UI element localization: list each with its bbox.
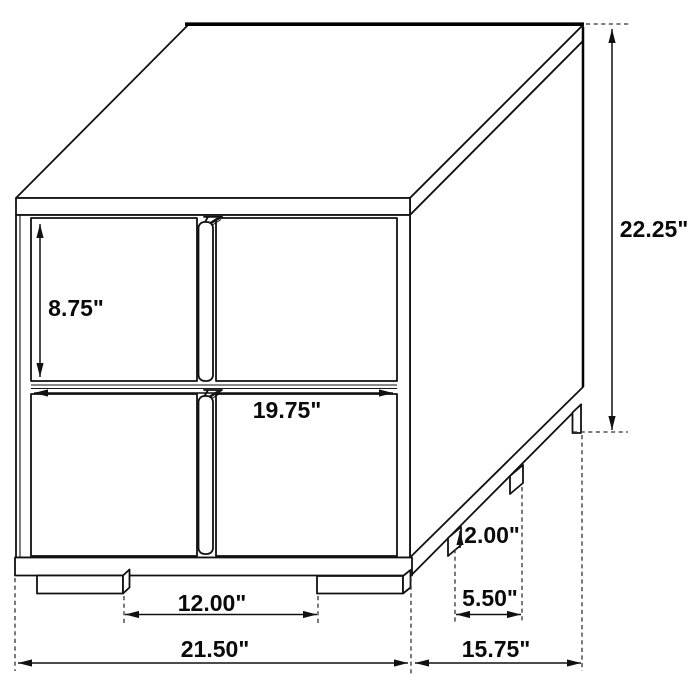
furniture-dimension-diagram: 8.75" 19.75" 22.25" 2.00" 5.50" 12.00" 2… — [0, 0, 700, 700]
top-slab-front-edge — [16, 198, 410, 215]
base — [15, 558, 412, 594]
dimension-front-leg-spacing: 12.00" — [125, 590, 317, 616]
front-right-leg — [317, 576, 403, 594]
dimension-overall-depth: 15.75" — [415, 636, 581, 663]
drawer-front-upper-right — [216, 218, 397, 381]
front-face — [16, 215, 410, 558]
handle-bar — [199, 222, 214, 381]
dimension-overall-width: 21.50" — [18, 636, 408, 663]
front-plinth — [15, 558, 412, 576]
dim-label-front-leg-spacing: 12.00" — [178, 590, 246, 616]
dim-label-drawer-height: 8.75" — [48, 295, 104, 321]
dimension-overall-height: 22.25" — [612, 29, 688, 430]
dim-label-overall-width: 21.50" — [181, 636, 249, 662]
front-left-leg — [37, 576, 123, 594]
dim-label-overall-height: 22.25" — [620, 216, 688, 242]
handle-bar — [199, 396, 214, 554]
drawer-front-lower-left — [31, 394, 197, 556]
diagram-canvas: 8.75" 19.75" 22.25" 2.00" 5.50" 12.00" 2… — [0, 0, 700, 700]
side-middle-leg — [510, 465, 523, 494]
dim-label-side-leg-spacing: 5.50" — [462, 585, 518, 611]
dimension-side-leg-spacing: 5.50" — [456, 585, 521, 615]
dim-label-overall-depth: 15.75" — [462, 636, 530, 662]
dimension-leg-height: 2.00" — [460, 522, 520, 548]
dim-label-drawer-front-width: 19.75" — [253, 397, 321, 423]
dim-label-leg-height: 2.00" — [464, 522, 520, 548]
side-back-leg — [573, 405, 582, 434]
